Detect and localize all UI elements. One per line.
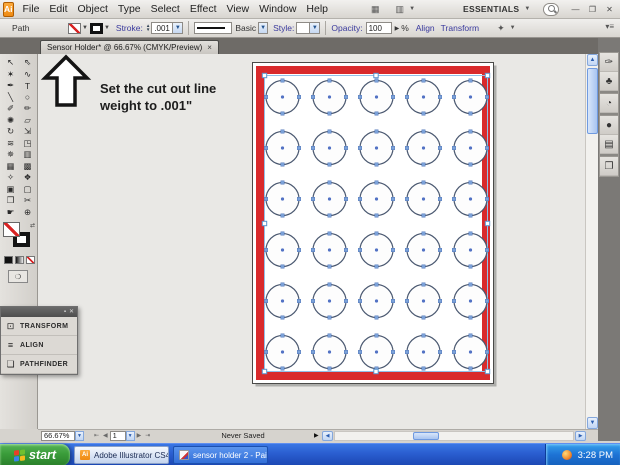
anchor-point [405,95,408,98]
document-tab-title: Sensor Holder* @ 66.67% (CMYK/Preview) [47,43,202,52]
anchor-point [405,299,408,302]
document-tab[interactable]: Sensor Holder* @ 66.67% (CMYK/Preview) × [40,40,219,54]
workspace-caret-icon: ▼ [524,6,530,12]
graph-tool[interactable]: ▥ [19,149,36,161]
anchor-point [328,367,331,370]
illustrator-taskbar-icon: Ai [80,450,90,460]
anchor-point [485,248,488,251]
windows-taskbar: start Ai Adobe Illustrator CS4... sensor… [0,443,620,465]
symbols-icon[interactable]: ♣ [600,72,618,91]
anchor-point [311,350,314,353]
anchor-point [405,248,408,251]
selection-handle[interactable] [262,369,266,373]
pencil-tool[interactable]: ✏ [19,103,36,115]
center-point [281,146,284,149]
zoom-caret-icon[interactable]: ▼ [75,431,84,441]
save-status-text: Never Saved [221,431,264,440]
anchor-point [311,248,314,251]
anchor-point [297,299,300,302]
anchor-point [452,350,455,353]
first-artboard-icon[interactable]: ⇤ [92,432,101,439]
panel-tab-align[interactable]: ≡ALIGN [1,336,77,355]
zoom-tool[interactable]: ⊕ [19,207,36,219]
anchor-point [311,146,314,149]
pathfinder-icon: ❏ [5,359,16,370]
selection-handle[interactable] [485,369,489,373]
anchor-point [311,299,314,302]
window-controls: — ❐ ✕ [569,4,616,15]
anchor-point [469,316,472,319]
pathfinder-label: PATHFINDER [20,361,68,368]
anchor-point [469,367,472,370]
center-point [281,299,284,302]
lasso-tool[interactable]: ∿ [19,69,36,81]
anchor-point [344,248,347,251]
workspace-switcher[interactable]: ESSENTIALS ▼ [463,4,531,14]
center-point [328,95,331,98]
anchor-point [358,350,361,353]
center-point [375,197,378,200]
mesh-tool[interactable]: ▦ [2,161,19,173]
align-link[interactable]: Align [416,23,435,33]
scroll-up-icon[interactable]: ▲ [587,54,598,66]
stroke-link[interactable]: Stroke: [116,23,143,33]
anchor-point [281,367,284,370]
status-flyout-icon[interactable]: ▶ [314,430,319,441]
stroke-weight-field[interactable]: .001 [151,22,173,34]
anchor-point [485,350,488,353]
selection-type-label: Path [12,23,64,33]
selection-handle[interactable] [374,73,378,77]
anchor-point [264,197,267,200]
anchor-point [469,79,472,82]
drawing-mode-button[interactable]: ❍ [8,270,28,283]
scroll-left-icon[interactable]: ◀ [322,431,333,441]
type-tool[interactable]: T [19,80,36,92]
menu-window[interactable]: Window [254,1,301,17]
center-point [328,146,331,149]
search-input[interactable] [543,3,559,16]
style-field[interactable] [296,22,310,34]
center-point [422,299,425,302]
menu-effect[interactable]: Effect [185,1,222,17]
panel-minimize-icon[interactable]: ▪ [64,309,66,315]
center-point [281,350,284,353]
anchor-point [328,181,331,184]
anchor-point [485,95,488,98]
anchor-point [422,316,425,319]
anchor-point [422,367,425,370]
zoom-level-field[interactable]: 66.67% [41,431,75,441]
anchor-point [375,283,378,286]
anchor-point [281,130,284,133]
anchor-point [344,350,347,353]
anchor-point [264,95,267,98]
center-point [328,248,331,251]
selection-tool[interactable]: ↖ [2,57,19,69]
anchor-point [281,181,284,184]
anchor-point [281,265,284,268]
prev-artboard-icon[interactable]: ◀ [101,432,110,439]
anchor-point [452,95,455,98]
anchor-point [297,248,300,251]
center-point [469,248,472,251]
scale-tool[interactable]: ⇲ [19,126,36,138]
next-artboard-icon[interactable]: ▶ [135,432,144,439]
anchor-point [485,146,488,149]
opacity-link[interactable]: Opacity: [331,23,362,33]
stroke-weight-caret-icon[interactable]: ▼ [173,22,183,34]
panel-rows: ⊡TRANSFORM≡ALIGN❏PATHFINDER [1,317,77,374]
document-canvas[interactable]: Set the cut out line weight to .001" [38,54,598,429]
center-point [469,299,472,302]
swap-fill-stroke-icon[interactable]: ⇄ [30,222,35,229]
center-point [422,248,425,251]
align-icon: ≡ [5,340,16,350]
anchor-point [328,283,331,286]
status-bar: 66.67% ▼ ⇤ ◀ 1 ▼ ▶ ⇥ Never Saved ▶ ◀ ▶ [38,429,598,441]
anchor-point [422,163,425,166]
blend-tool[interactable]: ❖ [19,172,36,184]
anchor-point [297,146,300,149]
anchor-point [281,232,284,235]
menu-items: FileEditObjectTypeSelectEffectViewWindow… [18,1,334,17]
panel-tab-transform[interactable]: ⊡TRANSFORM [1,317,77,336]
artboard-number-field[interactable]: 1 [110,431,126,441]
last-artboard-icon[interactable]: ⇥ [143,432,152,439]
align-label: ALIGN [20,342,44,349]
menu-edit[interactable]: Edit [44,1,72,17]
anchor-point [438,197,441,200]
anchor-point [391,350,394,353]
paintbrush-tool[interactable]: ✐ [2,103,19,115]
search-icon [547,4,557,14]
red-border-rectangle [260,70,486,376]
anchor-point [469,163,472,166]
swatches-icon[interactable]: ▤ [600,135,618,154]
gradient-button[interactable] [15,256,24,264]
stroke-spinner[interactable]: ▲▼ [146,24,150,32]
anchor-point [485,299,488,302]
gradient-tool[interactable]: ▩ [19,161,36,173]
minimize-button[interactable]: — [569,4,582,15]
menu-type[interactable]: Type [113,1,146,17]
selection-handle[interactable] [485,73,489,77]
tab-close-icon[interactable]: × [207,43,212,52]
selection-handle[interactable] [374,369,378,373]
color-button[interactable] [4,256,13,264]
anchor-point [311,197,314,200]
anchor-point [469,181,472,184]
opacity-field[interactable]: 100 [366,22,392,34]
center-point [281,248,284,251]
style-caret-icon[interactable]: ▼ [310,22,320,34]
selection-handle[interactable] [485,221,489,225]
select-similar-icon[interactable]: ✦ [493,21,509,36]
selection-handle[interactable] [262,221,266,225]
style-link[interactable]: Style: [273,23,294,33]
anchor-point [328,214,331,217]
brush-name[interactable]: Basic [235,23,256,33]
anchor-point [281,214,284,217]
eyedropper-tool[interactable]: ✧ [2,172,19,184]
menu-file[interactable]: File [18,1,45,17]
fill-swatch[interactable] [68,23,81,34]
anchor-point [422,112,425,115]
scroll-down-icon[interactable]: ▼ [587,417,598,429]
menu-view[interactable]: View [221,1,254,17]
anchor-point [344,197,347,200]
tray-notification-icon[interactable] [562,450,572,460]
anchor-point [438,146,441,149]
center-point [375,350,378,353]
blob-brush-tool[interactable]: ✺ [2,115,19,127]
transform-label: TRANSFORM [20,323,68,330]
symbol-sprayer-tool[interactable]: ✵ [2,149,19,161]
control-bar: Path ▼ ▼ Stroke: ▲▼ .001 ▼ Basic ▼ Style… [0,19,620,38]
anchor-point [391,197,394,200]
anchor-point [297,350,300,353]
menu-select[interactable]: Select [146,1,185,17]
center-point [422,95,425,98]
anchor-point [375,232,378,235]
fill-stroke-indicator: ⇄ [3,222,35,252]
panel-title-bar[interactable]: ▪ ✕ [1,307,77,317]
color-mode-buttons [4,256,35,264]
control-panel-menu-icon[interactable]: ▾≡ [605,22,614,31]
center-point [328,197,331,200]
horizontal-scrollbar[interactable] [334,431,574,441]
anchor-point [375,112,378,115]
center-point [281,95,284,98]
menu-bar: Ai FileEditObjectTypeSelectEffectViewWin… [0,0,620,19]
collapsed-panel-group: ▪ ✕ ⊡TRANSFORM≡ALIGN❏PATHFINDER [0,306,78,375]
center-point [469,197,472,200]
taskbar-button-illustrator[interactable]: Ai Adobe Illustrator CS4... [74,446,169,464]
anchor-point [264,146,267,149]
start-button[interactable]: start [0,444,70,465]
vertical-scroll-thumb[interactable] [587,68,598,134]
panel-tab-pathfinder[interactable]: ❏PATHFINDER [1,355,77,374]
fill-color-well[interactable] [3,222,20,237]
center-point [469,146,472,149]
none-button[interactable] [26,256,35,264]
anchor-point [281,112,284,115]
anchor-point [438,248,441,251]
anchor-point [328,316,331,319]
select-similar-caret-icon[interactable]: ▼ [510,25,516,31]
tools-grid: ↖⇖✶∿✒T╲○✐✏✺▱↻⇲≋◳✵▥▦▩✧❖▣▢❒✂☛⊕ [2,57,37,218]
opacity-unit: % [401,23,409,33]
anchor-point [422,265,425,268]
paint-taskbar-icon [179,450,189,460]
anchor-point [328,265,331,268]
pen-tool[interactable]: ✒ [2,80,19,92]
warp-tool[interactable]: ≋ [2,138,19,150]
anchor-point [485,197,488,200]
anchor-point [358,95,361,98]
anchor-point [469,214,472,217]
direct-selection-tool[interactable]: ⇖ [19,57,36,69]
center-point [328,299,331,302]
anchor-point [328,163,331,166]
anchor-point [281,316,284,319]
anchor-point [391,146,394,149]
illustrator-logo[interactable]: Ai [3,2,14,17]
anchor-point [422,334,425,337]
anchor-point [328,112,331,115]
anchor-point [297,95,300,98]
anchor-point [422,214,425,217]
live-paint-bucket-tool[interactable]: ▣ [2,184,19,196]
anchor-point [452,146,455,149]
anchor-point [328,130,331,133]
color-guide-icon[interactable]: ◔ [600,94,618,113]
line-segment-tool[interactable]: ╲ [2,92,19,104]
anchor-point [281,163,284,166]
center-point [469,350,472,353]
center-point [375,146,378,149]
anchor-point [281,334,284,337]
opacity-flyout-icon[interactable]: ▶ [395,25,400,32]
selection-handle[interactable] [262,73,266,77]
anchor-point [405,350,408,353]
menu-object[interactable]: Object [73,1,113,17]
anchor-point [452,248,455,251]
anchor-point [375,130,378,133]
center-point [328,350,331,353]
anchor-point [391,95,394,98]
anchor-point [438,350,441,353]
stroke-caret-icon[interactable]: ▼ [104,25,110,31]
scroll-right-icon[interactable]: ▶ [575,431,586,441]
center-point [422,350,425,353]
taskbar-button-paint[interactable]: sensor holder 2 - Paint [173,446,268,464]
anchor-point [469,334,472,337]
anchor-point [375,214,378,217]
center-point [469,95,472,98]
center-point [281,197,284,200]
artboard-caret-icon[interactable]: ▼ [126,431,135,441]
magic-wand-tool[interactable]: ✶ [2,69,19,81]
anchor-point [469,112,472,115]
windows-flag-icon [14,449,25,461]
anchor-point [438,299,441,302]
eraser-tool[interactable]: ▱ [19,115,36,127]
system-tray: 3:28 PM [545,444,620,465]
menu-help[interactable]: Help [301,1,333,17]
anchor-point [375,265,378,268]
anchor-point [452,299,455,302]
anchor-point [375,181,378,184]
anchor-point [452,197,455,200]
anchor-point [281,79,284,82]
center-point [375,248,378,251]
anchor-point [391,299,394,302]
arrange-documents-caret-icon[interactable]: ▼ [409,6,415,12]
vertical-scrollbar[interactable]: ▲ ▼ [585,54,598,429]
anchor-point [469,265,472,268]
ellipse-tool[interactable]: ○ [19,92,36,104]
artboard-tool[interactable]: ❒ [2,195,19,207]
anchor-point [281,283,284,286]
anchor-point [469,283,472,286]
center-point [375,299,378,302]
anchor-point [391,248,394,251]
anchor-point [264,350,267,353]
anchor-point [358,299,361,302]
anchor-point [358,248,361,251]
annotation-arrow [38,54,94,108]
color-icon[interactable]: ● [600,116,618,135]
anchor-point [405,197,408,200]
stroke-swatch[interactable] [90,23,103,34]
anchor-point [328,79,331,82]
anchor-point [264,248,267,251]
brush-preview-field[interactable] [194,22,232,34]
horizontal-scroll-thumb[interactable] [413,432,439,440]
annotation-text: Set the cut out line weight to .001" [100,80,250,114]
close-button[interactable]: ✕ [603,4,616,15]
anchor-point [469,130,472,133]
transform-icon: ⊡ [5,321,16,332]
anchor-point [405,146,408,149]
anchor-point [375,334,378,337]
bridge-icon[interactable]: ▦ [367,2,384,17]
anchor-point [422,79,425,82]
anchor-point [328,232,331,235]
layers-icon[interactable]: ❐ [600,157,618,176]
live-paint-selection-tool[interactable]: ▢ [19,184,36,196]
anchor-point [422,283,425,286]
rotate-tool[interactable]: ↻ [2,126,19,138]
anchor-point [328,334,331,337]
anchor-point [375,163,378,166]
center-point [422,197,425,200]
brush-caret-icon[interactable]: ▼ [258,22,268,34]
anchor-point [358,146,361,149]
anchor-point [264,299,267,302]
anchor-point [297,197,300,200]
brushes-icon[interactable]: ✑ [600,53,618,72]
hand-tool[interactable]: ☛ [2,207,19,219]
anchor-point [422,181,425,184]
dock-icon-column: ✑♣◔●▤❐ [599,52,619,177]
anchor-point [438,95,441,98]
anchor-point [375,316,378,319]
anchor-point [375,79,378,82]
anchor-point [344,146,347,149]
panel-close-icon[interactable]: ✕ [69,309,74,315]
anchor-point [344,95,347,98]
anchor-point [422,232,425,235]
fill-caret-icon[interactable]: ▼ [82,25,88,31]
restore-button[interactable]: ❐ [586,4,599,15]
anchor-point [344,299,347,302]
free-transform-tool[interactable]: ◳ [19,138,36,150]
arrange-documents-icon[interactable]: ▥ [392,2,409,17]
anchor-point [422,130,425,133]
slice-tool[interactable]: ✂ [19,195,36,207]
center-point [375,95,378,98]
anchor-point [469,232,472,235]
anchor-point [358,197,361,200]
transform-link[interactable]: Transform [441,23,479,33]
brush-stroke-preview [197,27,225,29]
center-point [422,146,425,149]
anchor-point [311,95,314,98]
taskbar-clock: 3:28 PM [578,450,613,461]
